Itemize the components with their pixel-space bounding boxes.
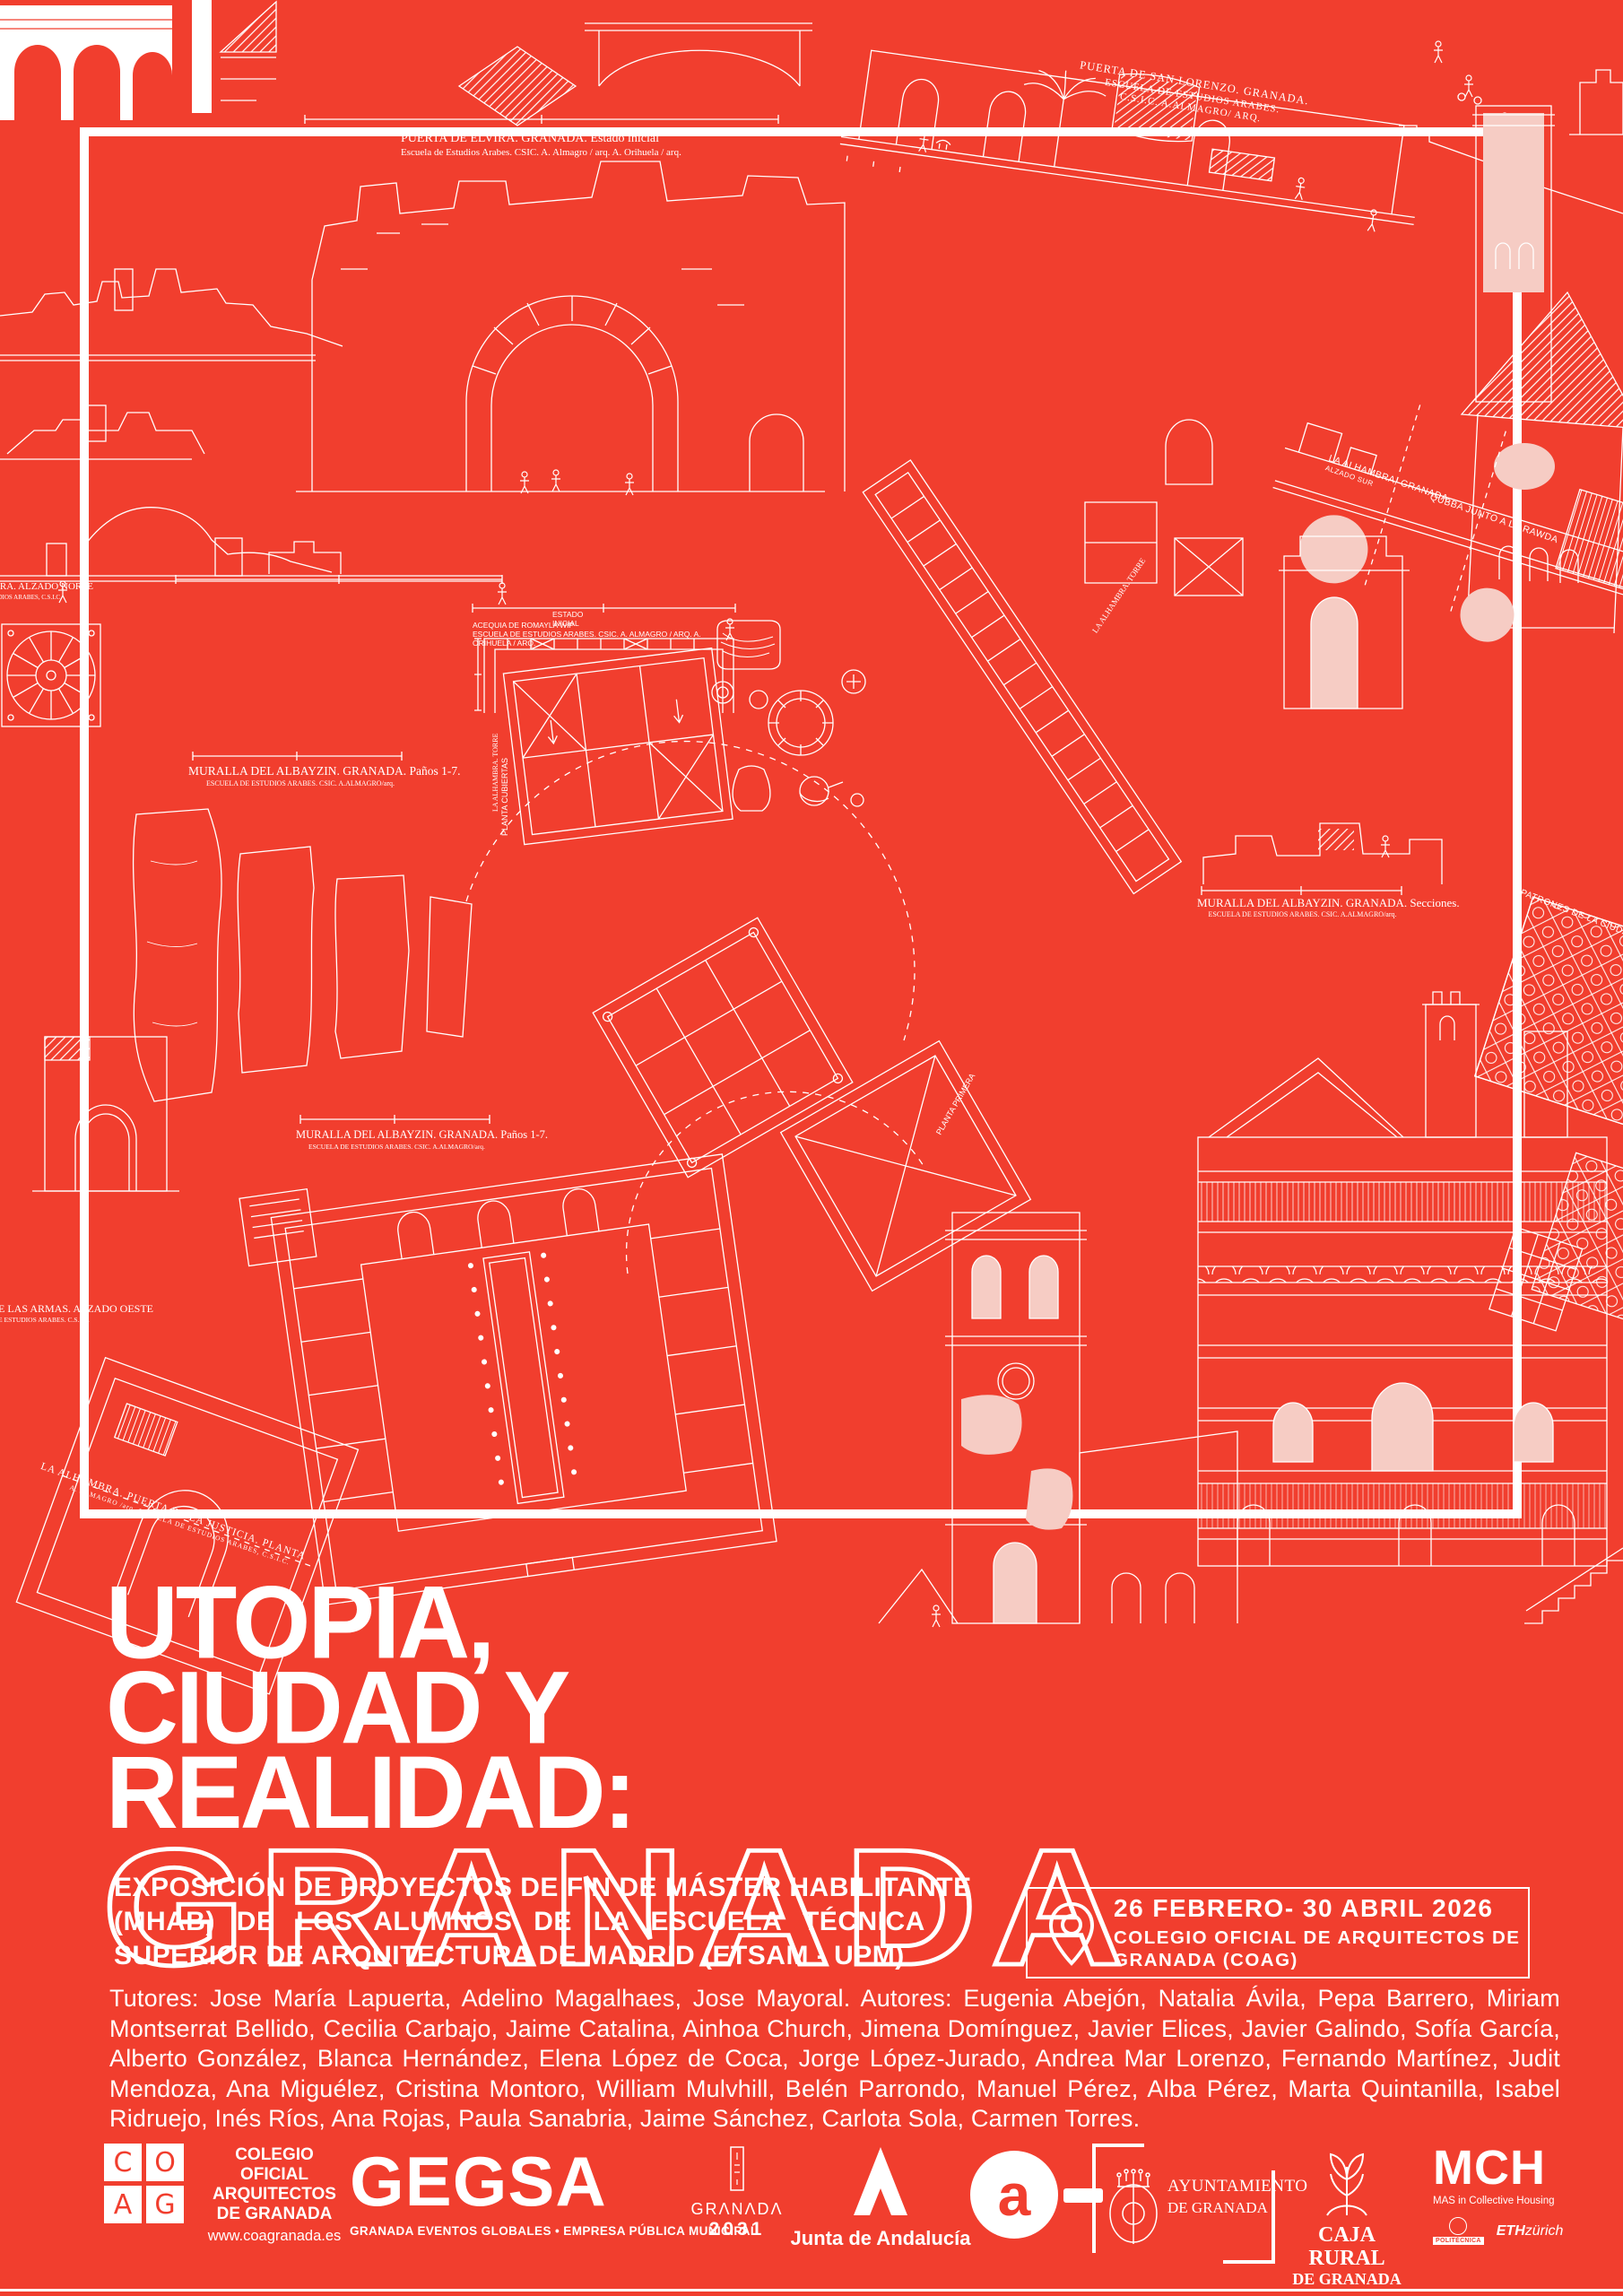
event-venue-line: COLEGIO OFICIAL DE ARQUITECTOS DE	[1114, 1926, 1520, 1949]
event-info-badge: 26 FEBRERO- 30 ABRIL 2026 COLEGIO OFICIA…	[1026, 1887, 1530, 1979]
junta-a-icon	[848, 2144, 913, 2217]
city-skyline-drawings	[0, 269, 507, 604]
granada-crest-icon	[1105, 2156, 1162, 2251]
caption-planta-cubiertas: PLANTA CUBIERTAS	[500, 758, 510, 836]
central-plans-drawing	[466, 742, 1030, 1291]
coag-url: www.coagranada.es	[199, 2226, 350, 2246]
coag-logo: C O A G	[104, 2144, 184, 2223]
puerta-horseshoe-drawing	[32, 1037, 179, 1191]
poster-title: UTOPIA, CIUDAD Y REALIDAD:	[106, 1580, 634, 1835]
arcade-drawing	[0, 0, 276, 120]
tutors-authors-credits: Tutores: Jose María Lapuerta, Adelino Ma…	[109, 1984, 1560, 2135]
palace-plan-drawing	[239, 1131, 777, 1609]
monument-icon	[728, 2145, 746, 2192]
caption-muralla-panos-1: MURALLA DEL ALBAYZIN. GRANADA. Paños 1-7…	[188, 764, 412, 788]
bell-tower-drawing	[879, 1213, 1237, 1627]
caption-puerta-armas: PUERTA DE LAS ARMAS. ALZADO OESTE /arq. …	[0, 1302, 153, 1324]
event-venue-line: GRANADA (COAG)	[1114, 1949, 1520, 1971]
puerta-elvira-drawing	[296, 23, 845, 495]
caption-torre-vertical: LA ALHAMBRA. TORRE	[491, 734, 500, 813]
poster-frame	[84, 132, 1517, 1514]
caja-rural-logo: CAJA RURAL DE GRANADA	[1284, 2140, 1410, 2289]
puerta-san-lorenzo-drawing	[838, 33, 1429, 244]
ceramics-objects-drawing	[712, 621, 865, 811]
politecnica-seal-icon	[1449, 2217, 1467, 2235]
coag-wordmark: COLEGIO OFICIAL ARQUITECTOS DE GRANADA w…	[199, 2145, 350, 2246]
geometric-tile-drawing	[1475, 897, 1623, 1331]
muralla-panos-drawing	[134, 752, 490, 1124]
subtitle-line: EXPOSICIÓN DE PROYECTOS DE FIN DE MÁSTER…	[114, 1871, 972, 1905]
exhibition-poster: PUERTA DE ELVIRA. GRANADA. Estado inicia…	[0, 0, 1623, 2296]
coag-letter: A	[104, 2186, 142, 2223]
caption-acequia-romayla: ACEQUIA DE ROMAYLA WIP ESCUELA DE ESTUDI…	[473, 621, 701, 648]
subtitle-line: SUPERIOR DE ARQUITECTURA DE MADRID (ETSA…	[114, 1939, 972, 1973]
coag-letter: G	[146, 2186, 184, 2223]
coag-letter: C	[104, 2144, 142, 2181]
fort-sketch	[1569, 70, 1623, 135]
coag-letter: O	[146, 2144, 184, 2181]
caption-muralla-secciones: MURALLA DEL ALBAYZIN. GRANADA. Secciones…	[1197, 896, 1408, 919]
subtitle-line: (MHAB) DE LOS ALUMNOS DE LA ESCUELA TÉCN…	[114, 1905, 972, 1939]
bottom-edge-line	[0, 2289, 1623, 2292]
eth-zurich-logo: ETHzürich	[1497, 2223, 1564, 2239]
granada-2031-logo: GRΛNΛDΛ 2031	[690, 2145, 784, 2240]
junta-andalucia-logo: Junta de Andalucía	[784, 2144, 977, 2250]
politecnica-logo: POLITÉCNICA	[1433, 2217, 1484, 2245]
wheat-icon	[1320, 2140, 1374, 2217]
alhambra-tower-section-drawing	[863, 460, 1181, 893]
poster-subtitle: EXPOSICIÓN DE PROYECTOS DE FIN DE MÁSTER…	[114, 1871, 972, 1973]
caption-alzado-norte: LA ALHAMBRA. ALZADO NORTE ESCUELA DE EST…	[0, 581, 93, 602]
a-guion-logo: a	[970, 2151, 1058, 2239]
mch-logo: MCH MAS in Collective Housing POLITÉCNIC…	[1433, 2144, 1563, 2245]
planta-cubiertas-drawing	[503, 648, 733, 845]
location-pin-icon	[1046, 1899, 1098, 1967]
ayuntamiento-granada-logo: AYUNTAMIENTO DE GRANADA	[1092, 2144, 1275, 2264]
caption-muralla-panos-2: MURALLA DEL ALBAYZIN. GRANADA. Paños 1-7…	[296, 1128, 498, 1151]
event-dates: 26 FEBRERO- 30 ABRIL 2026	[1114, 1894, 1520, 1923]
muralla-secciones-drawing	[1202, 823, 1442, 895]
caption-puerta-elvira: PUERTA DE ELVIRA. GRANADA. Estado inicia…	[401, 131, 681, 159]
